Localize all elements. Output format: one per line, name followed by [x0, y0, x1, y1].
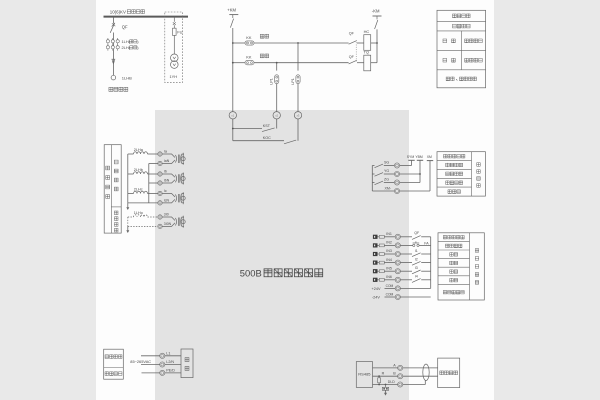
svg-text:1YH: 1YH: [170, 74, 178, 79]
svg-text:RS485: RS485: [358, 372, 371, 377]
svg-text:3I0N: 3I0N: [164, 222, 172, 226]
svg-text:QF: QF: [349, 32, 355, 36]
svg-text:Ic: Ic: [164, 189, 167, 193]
svg-text:DLD: DLD: [388, 380, 395, 384]
svg-text:I1: I1: [415, 249, 418, 253]
svg-text:YG: YG: [384, 169, 389, 173]
svg-text:I3: I3: [415, 266, 418, 270]
svg-text:+KM: +KM: [227, 8, 236, 13]
svg-text:XM-: XM-: [385, 186, 392, 190]
svg-text:1LHo: 1LHo: [134, 211, 143, 215]
svg-text:R: R: [382, 371, 385, 375]
svg-text:Ib: Ib: [164, 169, 167, 173]
svg-text:2LH(: 2LH(: [122, 45, 131, 50]
svg-text:3I0: 3I0: [164, 212, 169, 216]
svg-text:QF: QF: [414, 231, 420, 235]
svg-text:ZG: ZG: [384, 178, 389, 182]
svg-text:IN3: IN3: [386, 249, 392, 253]
svg-text:-24V: -24V: [372, 295, 380, 299]
svg-text:FA: FA: [424, 241, 429, 245]
svg-text:COM: COM: [386, 284, 394, 288]
svg-text:IbN: IbN: [164, 178, 170, 182]
svg-text:IN5: IN5: [386, 266, 392, 270]
svg-text:I4: I4: [415, 275, 418, 279]
svg-text:YBM: YBM: [415, 155, 423, 159]
svg-text:KOC: KOC: [263, 136, 271, 140]
svg-text:85~265VAC: 85~265VAC: [130, 359, 151, 364]
svg-text:SYM: SYM: [407, 155, 415, 159]
svg-text:KK: KK: [246, 55, 252, 60]
svg-text:+24V: +24V: [372, 287, 381, 291]
svg-text:I2: I2: [415, 257, 418, 261]
svg-text:QF: QF: [122, 25, 128, 30]
svg-text:2LHa: 2LHa: [134, 148, 144, 152]
svg-text:2LHb: 2LHb: [134, 168, 143, 172]
svg-text:LP1: LP1: [270, 78, 274, 84]
svg-text:IN4: IN4: [386, 258, 392, 262]
svg-text:10(6)KV: 10(6)KV: [110, 10, 126, 15]
svg-text:IN6: IN6: [386, 275, 392, 279]
svg-text:COM: COM: [386, 292, 394, 296]
svg-text:QF: QF: [349, 55, 355, 59]
svg-text:PE/D: PE/D: [166, 369, 175, 373]
svg-text:2LHc: 2LHc: [134, 187, 143, 191]
svg-text:IN2: IN2: [386, 241, 392, 245]
svg-text:XM: XM: [427, 155, 432, 159]
svg-text:500B: 500B: [240, 268, 262, 279]
svg-text:IcN: IcN: [164, 198, 170, 202]
svg-text:L1: L1: [166, 351, 170, 355]
svg-text:IN1: IN1: [386, 232, 392, 236]
svg-text:TQ: TQ: [364, 50, 369, 55]
svg-text:L2/N: L2/N: [166, 360, 174, 364]
svg-text:IaN: IaN: [164, 159, 170, 163]
svg-text:-KM: -KM: [372, 9, 380, 14]
svg-text:KST: KST: [263, 124, 271, 128]
svg-text:LP1: LP1: [291, 78, 295, 84]
svg-text:1LH(: 1LH(: [122, 39, 131, 44]
svg-text:FU: FU: [177, 29, 182, 34]
svg-text:1LHB: 1LHB: [122, 75, 132, 80]
svg-text:SG: SG: [384, 161, 389, 165]
svg-text:KK: KK: [246, 35, 252, 40]
svg-text:HC: HC: [364, 29, 370, 34]
